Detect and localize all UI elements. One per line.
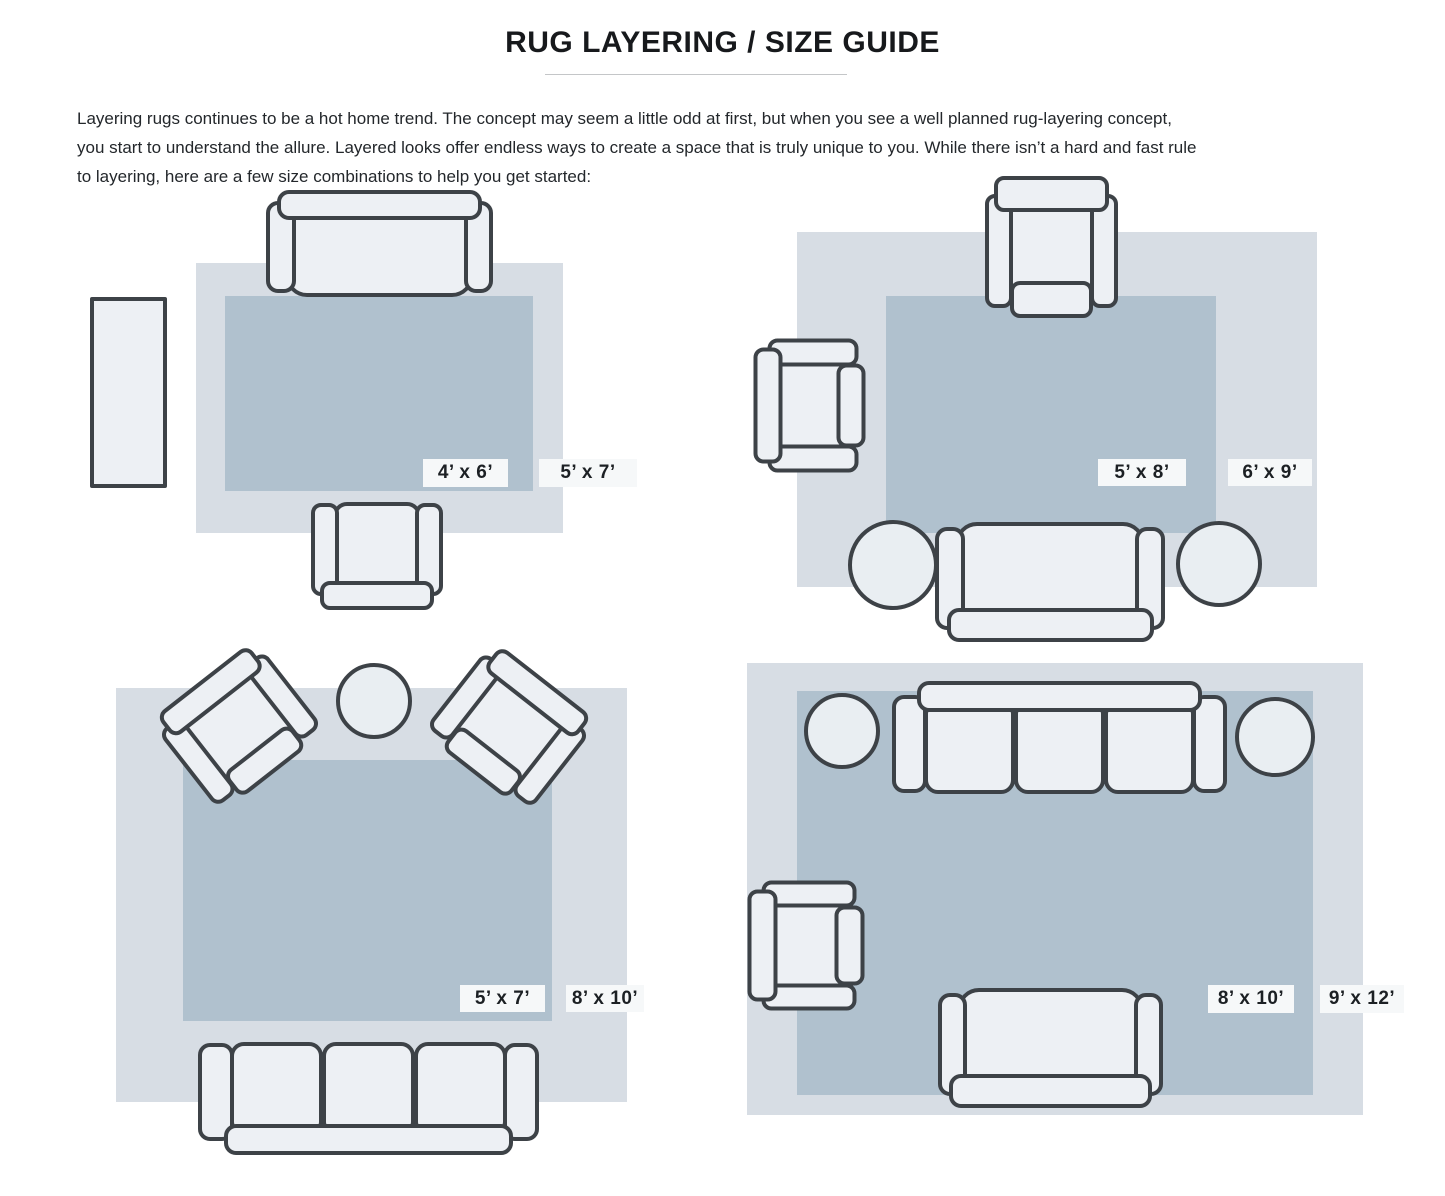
intro-line-1: Layering rugs continues to be a hot home…: [77, 104, 1377, 133]
diagram-bottom-left: 5’ x 7’ 8’ x 10’: [100, 640, 660, 1196]
sofa-back-cushion: [224, 1124, 514, 1155]
inner-rug: [886, 296, 1216, 533]
inner-rug-size-label: 8’ x 10’: [1208, 985, 1294, 1013]
sofa-cushion: [322, 1042, 415, 1132]
armchair: [311, 501, 443, 610]
round-table: [1235, 697, 1315, 777]
sofa-back-cushion: [947, 608, 1154, 642]
sofa-cushion: [230, 1042, 323, 1132]
diagram-top-left: 4’ x 6’ 5’ x 7’: [80, 180, 650, 630]
sofa-cushion: [414, 1042, 507, 1132]
sofa-back-cushion: [917, 681, 1202, 712]
armchair-front-cushion: [834, 905, 864, 986]
outer-rug-size-label: 8’ x 10’: [566, 985, 644, 1012]
outer-rug-size-label: 6’ x 9’: [1228, 459, 1312, 486]
sofa-back-cushion: [277, 190, 481, 220]
inner-rug-size-label: 5’ x 8’: [1098, 459, 1186, 486]
sofa: [935, 522, 1165, 642]
inner-rug-size-label: 4’ x 6’: [423, 459, 508, 487]
sofa-seat: [955, 522, 1146, 617]
loveseat-back-cushion: [949, 1074, 1152, 1108]
sofa-cushion: [924, 704, 1015, 794]
armchair: [985, 176, 1118, 311]
loveseat: [938, 988, 1163, 1108]
loveseat-seat: [957, 988, 1144, 1083]
inner-rug-size-label: 5’ x 7’: [460, 985, 545, 1012]
armchair-back-cushion: [994, 176, 1108, 212]
diagram-bottom-right: 8’ x 10’ 9’ x 12’: [720, 640, 1420, 1196]
sofa: [266, 190, 493, 297]
sofa-cushion: [1014, 704, 1105, 794]
armchair-seat: [333, 502, 421, 588]
outer-rug-size-label: 9’ x 12’: [1320, 985, 1404, 1013]
armchair-back-cushion: [754, 348, 783, 463]
round-table: [336, 663, 412, 739]
title-divider: [545, 74, 847, 75]
page-title: RUG LAYERING / SIZE GUIDE: [0, 26, 1445, 60]
round-table: [804, 693, 880, 769]
sofa: [892, 681, 1227, 796]
intro-line-2: you start to understand the allure. Laye…: [77, 133, 1377, 162]
armchair-back-cushion: [320, 581, 434, 610]
side-table: [90, 297, 167, 488]
diagram-top-right: 5’ x 8’ 6’ x 9’: [740, 170, 1400, 660]
outer-rug-size-label: 5’ x 7’: [539, 459, 637, 487]
sofa-cushion: [1104, 704, 1195, 794]
inner-rug: [183, 760, 552, 1021]
sofa: [198, 1040, 539, 1155]
pouf: [848, 520, 938, 610]
armchair-front-cushion: [837, 364, 866, 447]
armchair-front-cushion: [1010, 281, 1092, 317]
armchair: [754, 339, 861, 473]
pouf: [1176, 521, 1262, 607]
armchair: [748, 881, 859, 1011]
armchair-back-cushion: [748, 890, 778, 1002]
sofa-seat: [285, 212, 473, 297]
rug-size-guide-infographic: RUG LAYERING / SIZE GUIDE Layering rugs …: [0, 0, 1445, 1196]
